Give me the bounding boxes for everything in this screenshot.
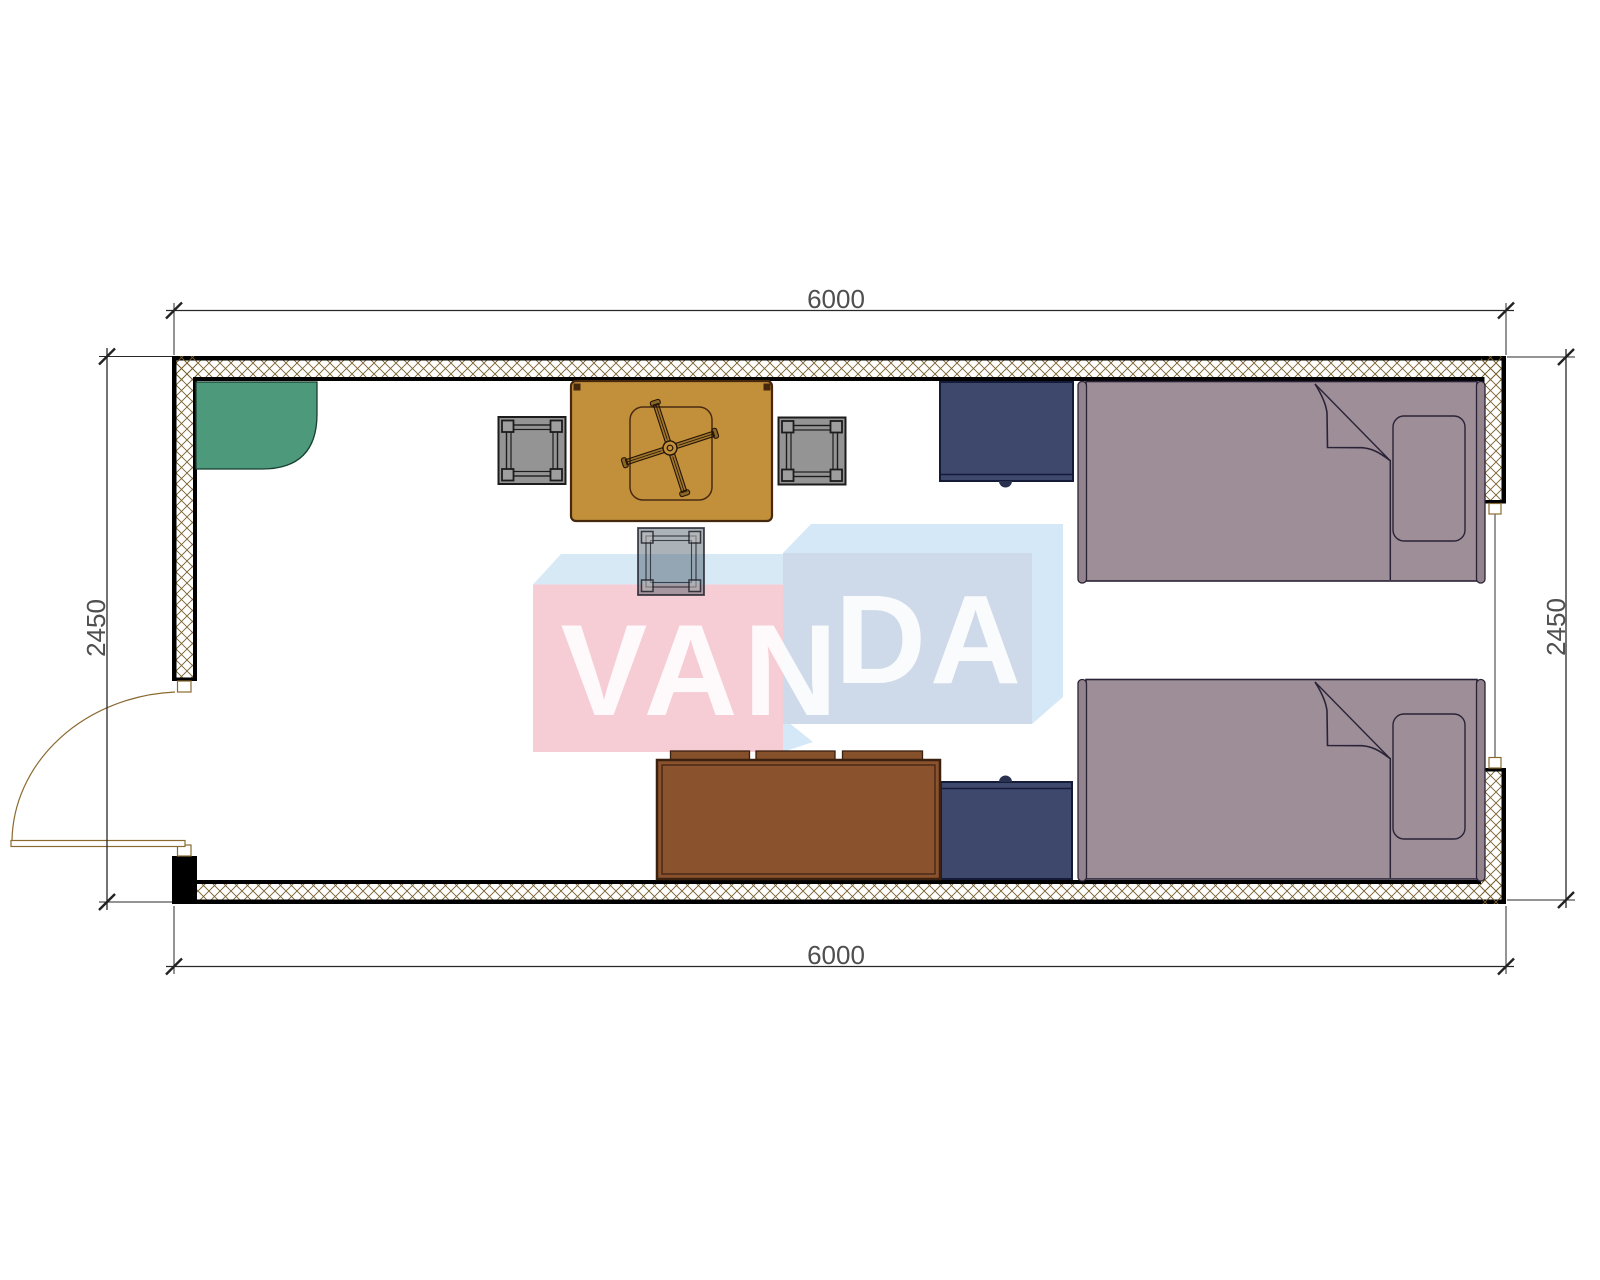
svg-text:6000: 6000 — [807, 940, 865, 970]
svg-text:VAN: VAN — [561, 597, 844, 743]
svg-text:6000: 6000 — [807, 284, 865, 314]
svg-text:2450: 2450 — [1541, 598, 1571, 656]
svg-text:2450: 2450 — [81, 599, 111, 657]
svg-text:DA: DA — [835, 569, 1025, 710]
